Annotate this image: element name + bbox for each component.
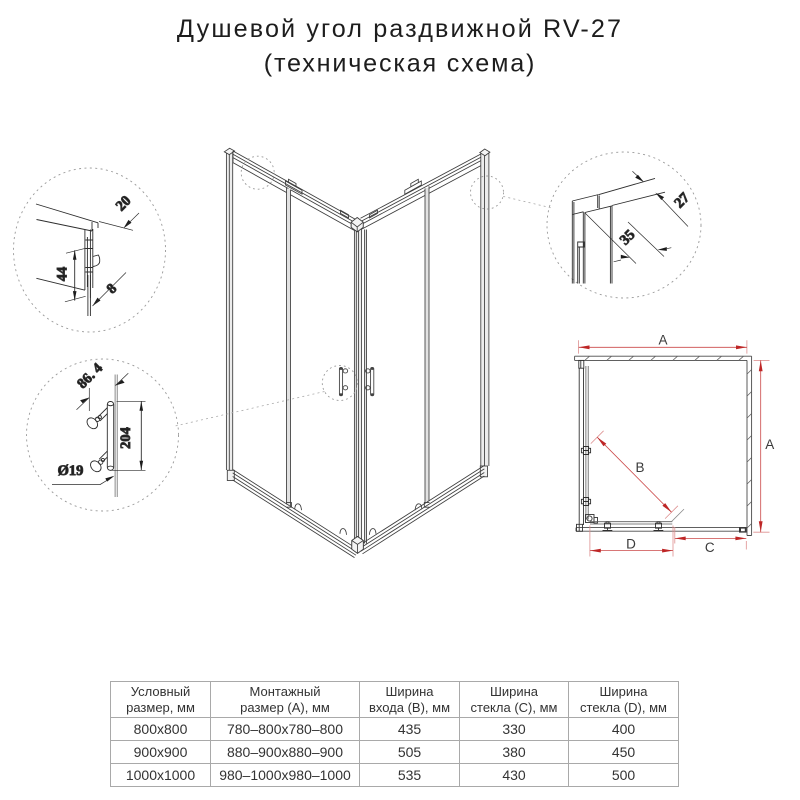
svg-text:27: 27 bbox=[671, 190, 693, 212]
svg-text:35: 35 bbox=[617, 227, 639, 249]
svg-text:204: 204 bbox=[118, 427, 134, 449]
svg-text:86. 4: 86. 4 bbox=[74, 360, 106, 392]
svg-text:44: 44 bbox=[55, 267, 71, 282]
svg-text:B: B bbox=[635, 460, 644, 475]
svg-text:A: A bbox=[658, 333, 667, 348]
svg-text:20: 20 bbox=[113, 193, 135, 215]
svg-text:(техническая схема): (техническая схема) bbox=[264, 50, 536, 78]
svg-text:Ø19: Ø19 bbox=[58, 463, 84, 479]
svg-text:8: 8 bbox=[104, 281, 120, 297]
svg-text:C: C bbox=[705, 540, 715, 555]
svg-text:D: D bbox=[626, 537, 636, 552]
svg-text:A: A bbox=[765, 437, 774, 452]
svg-text:Душевой угол раздвижной RV-27: Душевой угол раздвижной RV-27 bbox=[177, 15, 623, 43]
